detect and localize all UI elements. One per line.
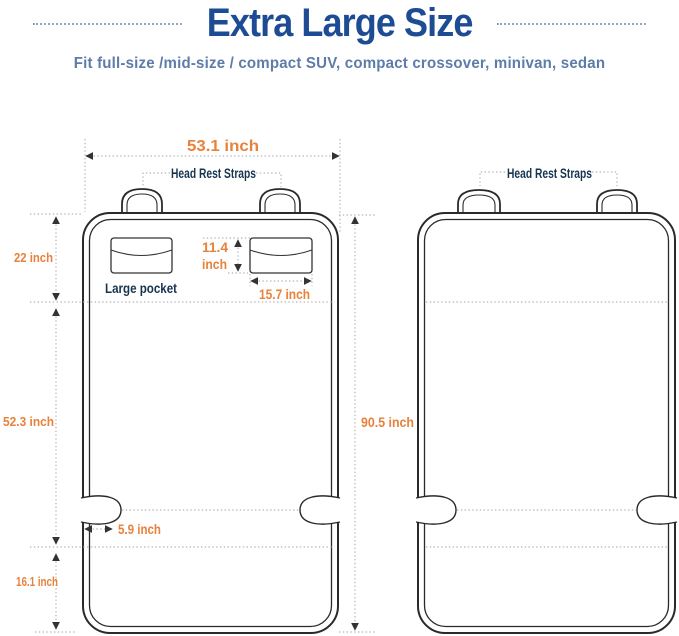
left-diagram: 53.1 inch Head Rest Straps 22 inch 11.4 … (3, 138, 377, 633)
pocket-width-label: 15.7 inch (259, 287, 310, 302)
middle-section-height-label: 52.3 inch (3, 414, 54, 429)
headrest-straps-label: Head Rest Straps (507, 166, 592, 181)
seat-protector-panel (418, 213, 675, 633)
width-dimension-label: 53.1 inch (187, 138, 259, 155)
dimension-diagram: 53.1 inch Head Rest Straps 22 inch 11.4 … (0, 0, 679, 636)
large-pocket-label: Large pocket (105, 281, 177, 296)
total-height-label: 90.5 inch (361, 415, 414, 430)
size-chart: Extra Large Size Fit full-size /mid-size… (0, 0, 679, 636)
headrest-straps-label: Head Rest Straps (171, 166, 256, 181)
seat-protector-panel (83, 213, 338, 633)
right-diagram: Head Rest Straps 90.5 inch (339, 166, 677, 633)
bottom-section-height-label: 16.1 inch (16, 574, 58, 589)
pocket-height-unit-label: inch (202, 256, 227, 272)
pocket-height-value-label: 11.4 (202, 239, 228, 255)
top-section-height-label: 22 inch (14, 250, 53, 265)
headrest-strap-shapes (122, 189, 300, 216)
notch-depth-label: 5.9 inch (118, 522, 161, 537)
